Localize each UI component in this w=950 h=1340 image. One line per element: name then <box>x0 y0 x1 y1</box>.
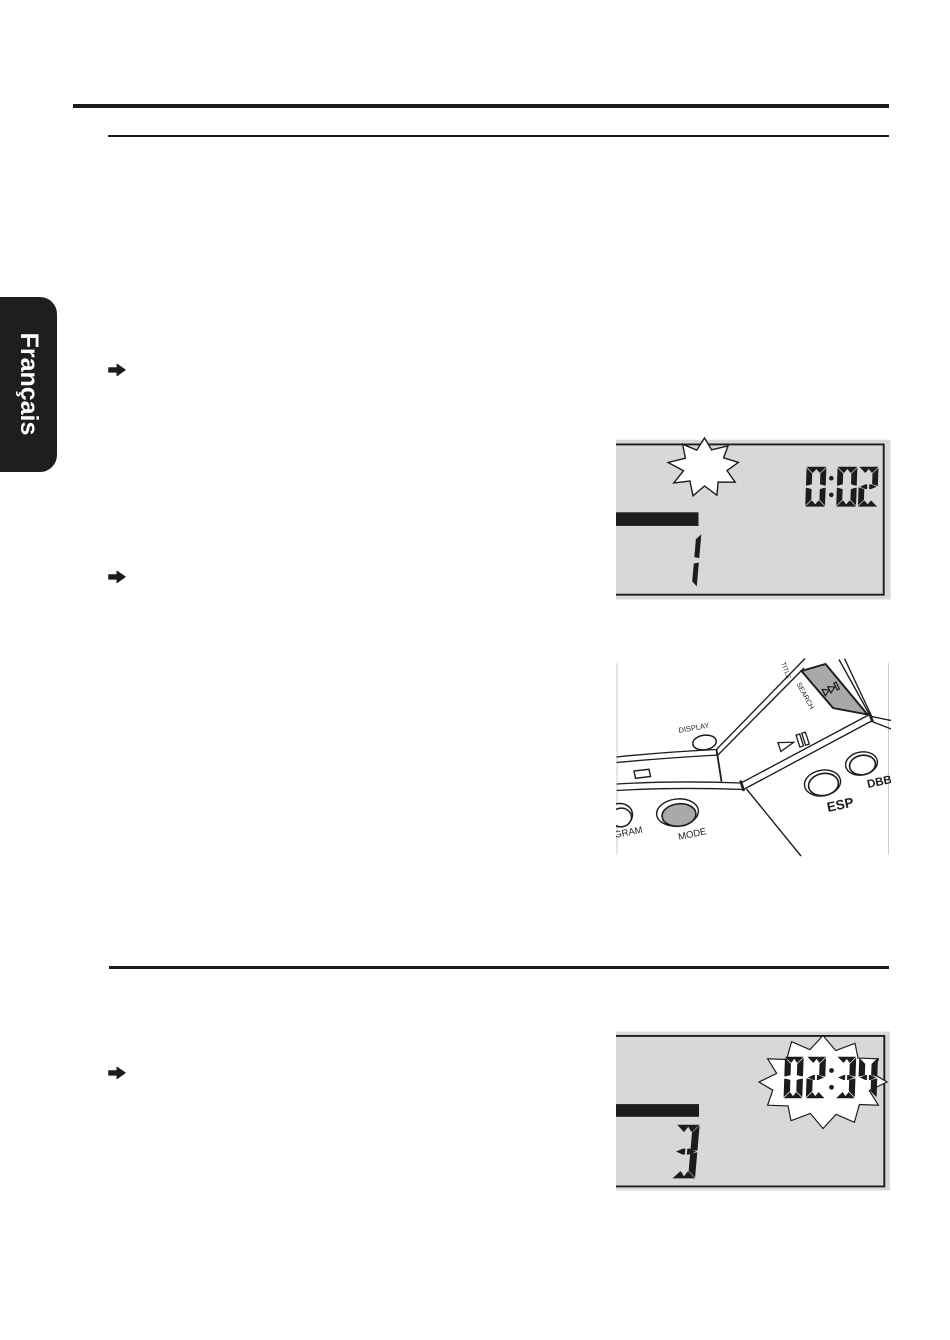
svg-text:MODE: MODE <box>677 826 707 843</box>
svg-text:DBB: DBB <box>866 774 891 791</box>
svg-text:DISPLAY: DISPLAY <box>678 721 710 735</box>
svg-text:ESP: ESP <box>826 795 856 815</box>
svg-text:TITLE: TITLE <box>779 661 792 681</box>
svg-text:SEARCH: SEARCH <box>795 682 815 711</box>
